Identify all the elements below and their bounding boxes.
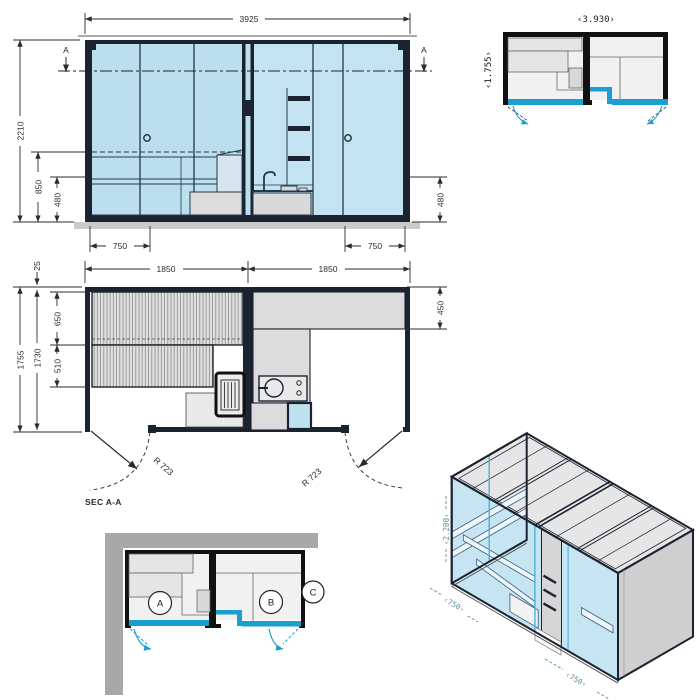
- section-plan-view: R 723 R 723 SEC A-A 1850 1850 25: [0, 250, 470, 515]
- dim-depth-outer: 1755: [13, 287, 82, 432]
- shelf-icon: [288, 96, 310, 101]
- door-radius-label: R 723: [300, 466, 324, 489]
- dim-module-left: 1850: [85, 261, 410, 283]
- iso-height-label: ‹2.200›: [442, 513, 451, 545]
- shower-bench: [253, 292, 405, 329]
- corner-plan-view: A B C: [90, 520, 340, 700]
- iso-divider-wall: [542, 529, 562, 647]
- floor-shadow: [74, 222, 420, 229]
- overview-cabin: [503, 32, 668, 124]
- shelf-icon: [288, 156, 310, 161]
- washbasin: [258, 376, 307, 401]
- dim-overall-width: 3925: [85, 13, 410, 34]
- sauna-heater: [216, 373, 244, 416]
- iso-cabin: ‹2.200› ‹750› ‹750›: [430, 433, 693, 699]
- corner-door-swings: [130, 629, 298, 649]
- section-title: SEC A-A: [85, 497, 122, 507]
- section-marker-label: A: [63, 45, 69, 55]
- dim-label: 650: [53, 312, 63, 326]
- shower-room-plan: [251, 292, 405, 430]
- dim-label: 1850: [157, 264, 176, 274]
- dim-seat-height-left: 480: [50, 177, 89, 222]
- door-handle-icon: [144, 135, 150, 141]
- dim-bench-right: 450: [404, 287, 447, 329]
- shower-tray: [288, 403, 311, 429]
- plan-cabin: R 723 R 723 SEC A-A: [85, 287, 410, 507]
- dim-label: 1755: [16, 350, 26, 369]
- room-c-badge: C: [310, 588, 317, 599]
- dim-seat-height-right: 480: [407, 177, 447, 222]
- section-marker-left: A: [63, 45, 69, 72]
- elevation-cabin: [58, 36, 432, 229]
- dim-wall-offset: 25: [32, 261, 42, 285]
- dim-bench-shallow: 510: [50, 345, 90, 387]
- dim-label: 1850: [319, 264, 338, 274]
- elevation-view: A A 3925 2210 850 480: [0, 0, 470, 252]
- door-lock-icon: [244, 100, 252, 116]
- section-marker-label: A: [421, 45, 427, 55]
- vanity-cabinet: [253, 193, 311, 215]
- section-marker-right: A: [421, 45, 427, 72]
- dim-label: 480: [436, 193, 446, 207]
- door-handle-icon: [345, 135, 351, 141]
- dim-label: 25: [32, 261, 42, 271]
- dim-label: 850: [34, 180, 44, 194]
- door-swing-left: R 723: [90, 431, 176, 490]
- dim-label: 2210: [16, 121, 26, 140]
- door-swing-right: R 723: [300, 431, 403, 489]
- iso-width-front-label: ‹750›: [564, 670, 588, 689]
- isometric-view: ‹2.200› ‹750› ‹750›: [415, 415, 700, 700]
- dim-module-right: 1850: [248, 263, 410, 274]
- sauna-bench-base: [190, 192, 242, 215]
- dim-label: 450: [436, 301, 446, 315]
- dim-label: 480: [53, 193, 63, 207]
- dim-label: 3925: [240, 14, 259, 24]
- shelf-icon: [288, 126, 310, 131]
- door-radius-label: R 723: [152, 455, 176, 478]
- overview-plan-view: ‹3.930› ‹1.755›: [470, 0, 700, 145]
- dim-depth-inner: 1730: [31, 290, 43, 430]
- dim-bench-deep: 650: [50, 292, 90, 345]
- room-b-badge: B: [268, 598, 274, 609]
- corner-cabin: A B C: [105, 533, 324, 695]
- dim-label: 1730: [33, 348, 43, 367]
- technical-drawing-sheet: A A 3925 2210 850 480: [0, 0, 700, 700]
- iso-width-left-label: ‹750›: [442, 595, 466, 614]
- dim-door-left: 750: [90, 226, 150, 252]
- overview-door-swings: [508, 106, 666, 124]
- dim-overall-height: 2210: [13, 40, 80, 222]
- overview-depth-label: ‹1.755›: [484, 51, 494, 89]
- dim-label: 510: [53, 359, 63, 373]
- elevation-divider: [242, 44, 254, 215]
- room-a-badge: A: [157, 599, 164, 610]
- dim-door-right: 750: [345, 226, 405, 252]
- overview-width-label: ‹3.930›: [577, 15, 615, 25]
